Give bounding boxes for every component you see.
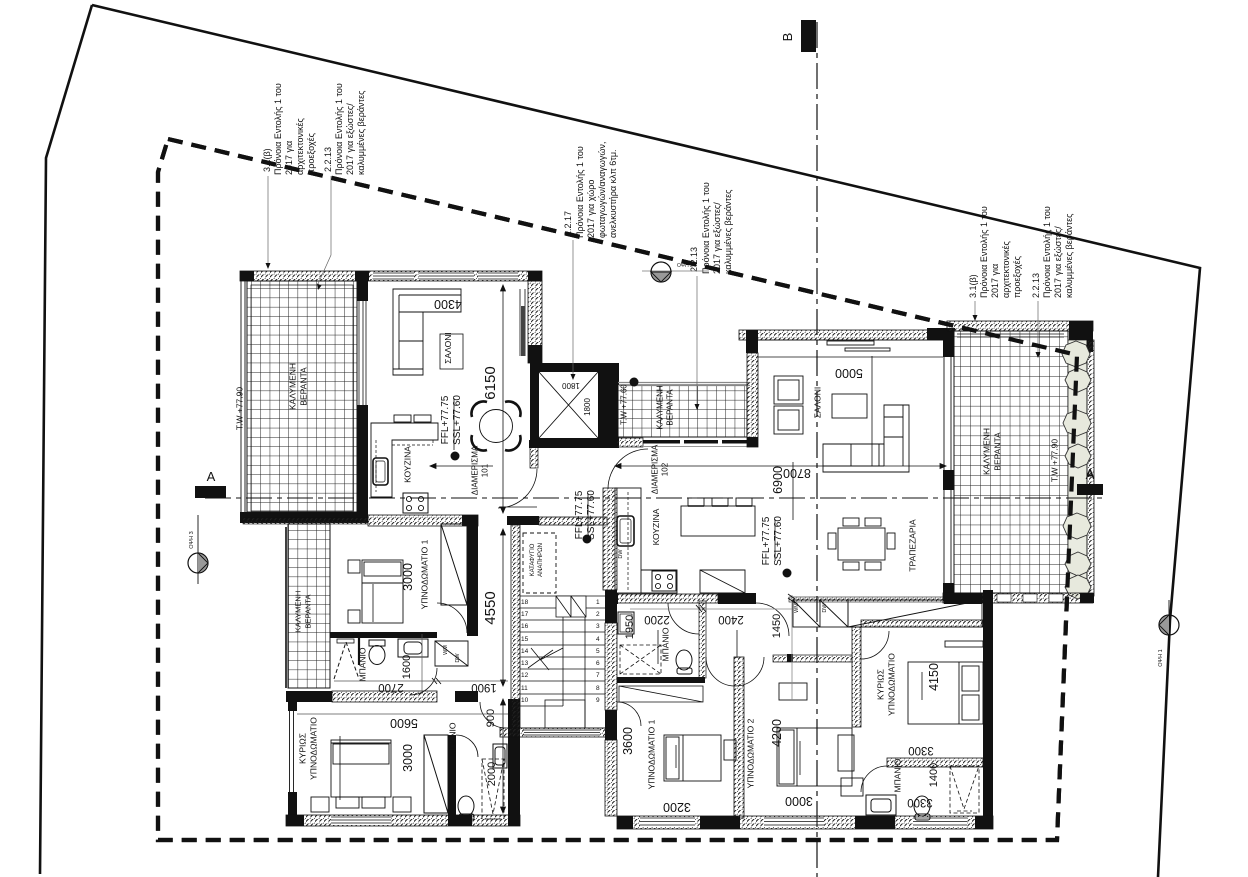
- svg-text:T.W +77.90: T.W +77.90: [1050, 439, 1060, 483]
- svg-text:2017 για εξώστες/: 2017 για εξώστες/: [1053, 226, 1063, 298]
- svg-text:ΥΠΝΟΔΩΜΑΤΙΟ: ΥΠΝΟΔΩΜΑΤΙΟ: [309, 717, 319, 780]
- svg-text:900: 900: [485, 709, 497, 727]
- svg-text:ΔΙΑΜΕΡΙΣΜΑ: ΔΙΑΜΕΡΙΣΜΑ: [651, 444, 660, 494]
- svg-text:1900: 1900: [471, 681, 497, 693]
- svg-text:Πρόνοια Εντολής 1 του: Πρόνοια Εντολής 1 του: [979, 206, 989, 298]
- svg-text:ΚΑΤΑΦΥΓΙΟ: ΚΑΤΑΦΥΓΙΟ: [530, 543, 536, 576]
- svg-text:Πρόνοια Εντολής 1 του: Πρόνοια Εντολής 1 του: [701, 182, 711, 274]
- svg-text:καλυμμένες βεράντες: καλυμμένες βεράντες: [356, 90, 366, 175]
- svg-text:ΜΠΑΝΙΟ: ΜΠΑΝΙΟ: [661, 627, 671, 661]
- svg-text:6150: 6150: [482, 366, 499, 399]
- svg-text:ΒΕΡΑΝΤΑ: ΒΕΡΑΝΤΑ: [304, 595, 313, 629]
- svg-text:7: 7: [596, 672, 600, 679]
- svg-text:ΚΟΥΖΙΝΑ: ΚΟΥΖΙΝΑ: [651, 508, 661, 545]
- svg-text:1950: 1950: [624, 615, 636, 639]
- svg-text:ΟΨΗ 3: ΟΨΗ 3: [189, 531, 195, 548]
- svg-text:ΚΥΡΙΩΣ: ΚΥΡΙΩΣ: [876, 669, 886, 700]
- svg-text:15: 15: [521, 636, 529, 643]
- svg-text:1450: 1450: [771, 614, 783, 638]
- svg-text:6: 6: [596, 660, 600, 667]
- svg-text:1800: 1800: [583, 398, 592, 416]
- svg-text:ΜΠΑΝΙΟ: ΜΠΑΝΙΟ: [893, 758, 903, 792]
- svg-text:καλυμμένες βεράντες: καλυμμένες βεράντες: [723, 189, 733, 274]
- svg-text:ΥΠΝΟΔΩΜΑΤΙΟ 1: ΥΠΝΟΔΩΜΑΤΙΟ 1: [647, 719, 657, 789]
- svg-text:αρχιτεκτονικές: αρχιτεκτονικές: [295, 117, 305, 175]
- svg-text:18: 18: [521, 599, 529, 606]
- svg-text:2017 για εξώστες/: 2017 για εξώστες/: [345, 103, 355, 175]
- svg-text:ΥΠΝΟΔΩΜΑΤΙΟ 2: ΥΠΝΟΔΩΜΑΤΙΟ 2: [746, 718, 756, 788]
- svg-text:16: 16: [521, 623, 529, 630]
- svg-text:3300: 3300: [908, 744, 934, 756]
- svg-text:1600: 1600: [401, 655, 413, 679]
- svg-text:Πρόνοια Εντολής 1 του: Πρόνοια Εντολής 1 του: [273, 83, 283, 175]
- svg-text:ΚΟΥΖΙΝΑ: ΚΟΥΖΙΝΑ: [403, 446, 413, 483]
- svg-text:9: 9: [596, 697, 600, 704]
- svg-text:προεξοχές: προεξοχές: [1012, 255, 1022, 298]
- svg-text:A: A: [207, 469, 216, 484]
- svg-text:4: 4: [596, 636, 600, 643]
- svg-text:ΚΑΛΥΜΕΝΗ: ΚΑΛΥΜΕΝΗ: [294, 591, 303, 633]
- svg-text:DW: DW: [455, 653, 461, 663]
- svg-text:ΚΑΛΥΜΕΝΗ: ΚΑΛΥΜΕΝΗ: [982, 428, 992, 475]
- svg-text:WM: WM: [443, 645, 449, 655]
- svg-text:6900: 6900: [771, 466, 785, 494]
- svg-text:2200: 2200: [644, 613, 670, 625]
- svg-text:11: 11: [521, 685, 528, 692]
- svg-text:5000: 5000: [835, 366, 863, 380]
- svg-text:ΜΠΑΝΙΟ: ΜΠΑΝΙΟ: [448, 722, 458, 756]
- svg-text:φωταγωγών/αναγωγών,: φωταγωγών/αναγωγών,: [597, 142, 607, 238]
- svg-text:3000: 3000: [401, 563, 415, 591]
- svg-text:17: 17: [521, 611, 529, 618]
- svg-text:2000: 2000: [486, 762, 498, 786]
- svg-text:3000: 3000: [401, 744, 415, 772]
- svg-text:2400: 2400: [718, 613, 744, 625]
- svg-text:ΑΝΑΠΗΡΩΝ: ΑΝΑΠΗΡΩΝ: [538, 543, 544, 577]
- svg-text:3200: 3200: [663, 800, 691, 814]
- svg-text:3: 3: [596, 623, 600, 630]
- svg-text:ΥΠΝΟΔΩΜΑΤΙΟ: ΥΠΝΟΔΩΜΑΤΙΟ: [887, 653, 897, 716]
- svg-text:5: 5: [596, 648, 600, 655]
- svg-text:3.1(β): 3.1(β): [968, 274, 978, 298]
- svg-text:4200: 4200: [770, 719, 784, 747]
- svg-text:3000: 3000: [785, 794, 813, 808]
- svg-text:A: A: [1086, 467, 1095, 482]
- svg-text:FFL+77.75: FFL+77.75: [440, 395, 451, 444]
- svg-text:4300: 4300: [434, 297, 462, 311]
- svg-text:καλυμμένες βεράντες: καλυμμένες βεράντες: [1064, 213, 1074, 298]
- svg-text:B: B: [780, 33, 795, 42]
- svg-text:1400: 1400: [928, 763, 940, 787]
- svg-text:2.2.13: 2.2.13: [323, 147, 333, 172]
- svg-text:Πρόνοια Εντολής 1 του: Πρόνοια Εντολής 1 του: [575, 146, 585, 238]
- svg-text:3600: 3600: [621, 727, 635, 755]
- svg-text:ΒΕΡΑΝΤΑ: ΒΕΡΑΝΤΑ: [993, 432, 1003, 471]
- svg-text:DW: DW: [618, 549, 624, 559]
- svg-text:4550: 4550: [482, 591, 499, 624]
- svg-text:2: 2: [596, 611, 600, 618]
- svg-text:1: 1: [596, 599, 600, 606]
- svg-text:ΒΕΡΑΝΤΑ: ΒΕΡΑΝΤΑ: [666, 389, 675, 426]
- svg-text:ΤΡΑΠΕΖΑΡΙΑ: ΤΡΑΠΕΖΑΡΙΑ: [908, 519, 918, 572]
- svg-text:T.W +77.60: T.W +77.60: [620, 384, 629, 425]
- svg-text:ΟΨΗ 1: ΟΨΗ 1: [1158, 649, 1164, 666]
- svg-text:ανελκυστήρα κλπ 6τμ.: ανελκυστήρα κλπ 6τμ.: [608, 149, 618, 238]
- svg-text:T.W +77.90: T.W +77.90: [235, 387, 245, 431]
- svg-text:4150: 4150: [927, 663, 941, 691]
- svg-text:2017 για εξώστες/: 2017 για εξώστες/: [712, 202, 722, 274]
- svg-text:ΜΠΑΝΙΟ: ΜΠΑΝΙΟ: [358, 647, 368, 681]
- svg-text:DW: DW: [822, 603, 828, 613]
- svg-text:1800: 1800: [562, 381, 580, 390]
- svg-text:ΔΙΑΜΕΡΙΣΜΑ: ΔΙΑΜΕΡΙΣΜΑ: [471, 445, 480, 495]
- svg-text:2017 για: 2017 για: [990, 264, 1000, 298]
- svg-text:13: 13: [521, 660, 529, 667]
- svg-text:ΣΑΛΟΝΙ: ΣΑΛΟΝΙ: [443, 332, 453, 364]
- svg-text:10: 10: [521, 697, 529, 704]
- svg-text:12: 12: [521, 672, 529, 679]
- svg-text:ΚΑΛΥΜΕΝΗ: ΚΑΛΥΜΕΝΗ: [656, 385, 665, 430]
- svg-text:8700: 8700: [783, 466, 811, 480]
- svg-text:14: 14: [521, 648, 529, 655]
- svg-text:ΒΕΡΑΝΤΑ: ΒΕΡΑΝΤΑ: [299, 367, 309, 406]
- svg-text:8: 8: [596, 685, 600, 692]
- svg-text:2700: 2700: [378, 681, 404, 693]
- svg-text:ΚΥΡΙΩΣ: ΚΥΡΙΩΣ: [298, 733, 308, 764]
- svg-text:αρχιτεκτονικές: αρχιτεκτονικές: [1001, 240, 1011, 298]
- svg-text:προεξοχές: προεξοχές: [306, 132, 316, 175]
- svg-text:ΥΠΝΟΔΩΜΑΤΙΟ 1: ΥΠΝΟΔΩΜΑΤΙΟ 1: [420, 539, 430, 609]
- svg-text:101: 101: [481, 463, 490, 477]
- svg-text:102: 102: [661, 462, 670, 476]
- svg-text:Πρόνοια Εντολής 1 του: Πρόνοια Εντολής 1 του: [334, 83, 344, 175]
- svg-text:Πρόνοια Εντολής 1 του: Πρόνοια Εντολής 1 του: [1042, 206, 1052, 298]
- svg-text:2.2.13: 2.2.13: [1031, 273, 1041, 298]
- svg-text:ΚΑΛΥΜΕΝΗ: ΚΑΛΥΜΕΝΗ: [288, 363, 298, 410]
- svg-text:3300: 3300: [907, 796, 933, 808]
- svg-text:5600: 5600: [390, 716, 418, 730]
- svg-text:2017 για χώρο: 2017 για χώρο: [586, 180, 596, 238]
- svg-text:FFL+77.75: FFL+77.75: [761, 516, 772, 565]
- svg-text:WM: WM: [794, 603, 800, 613]
